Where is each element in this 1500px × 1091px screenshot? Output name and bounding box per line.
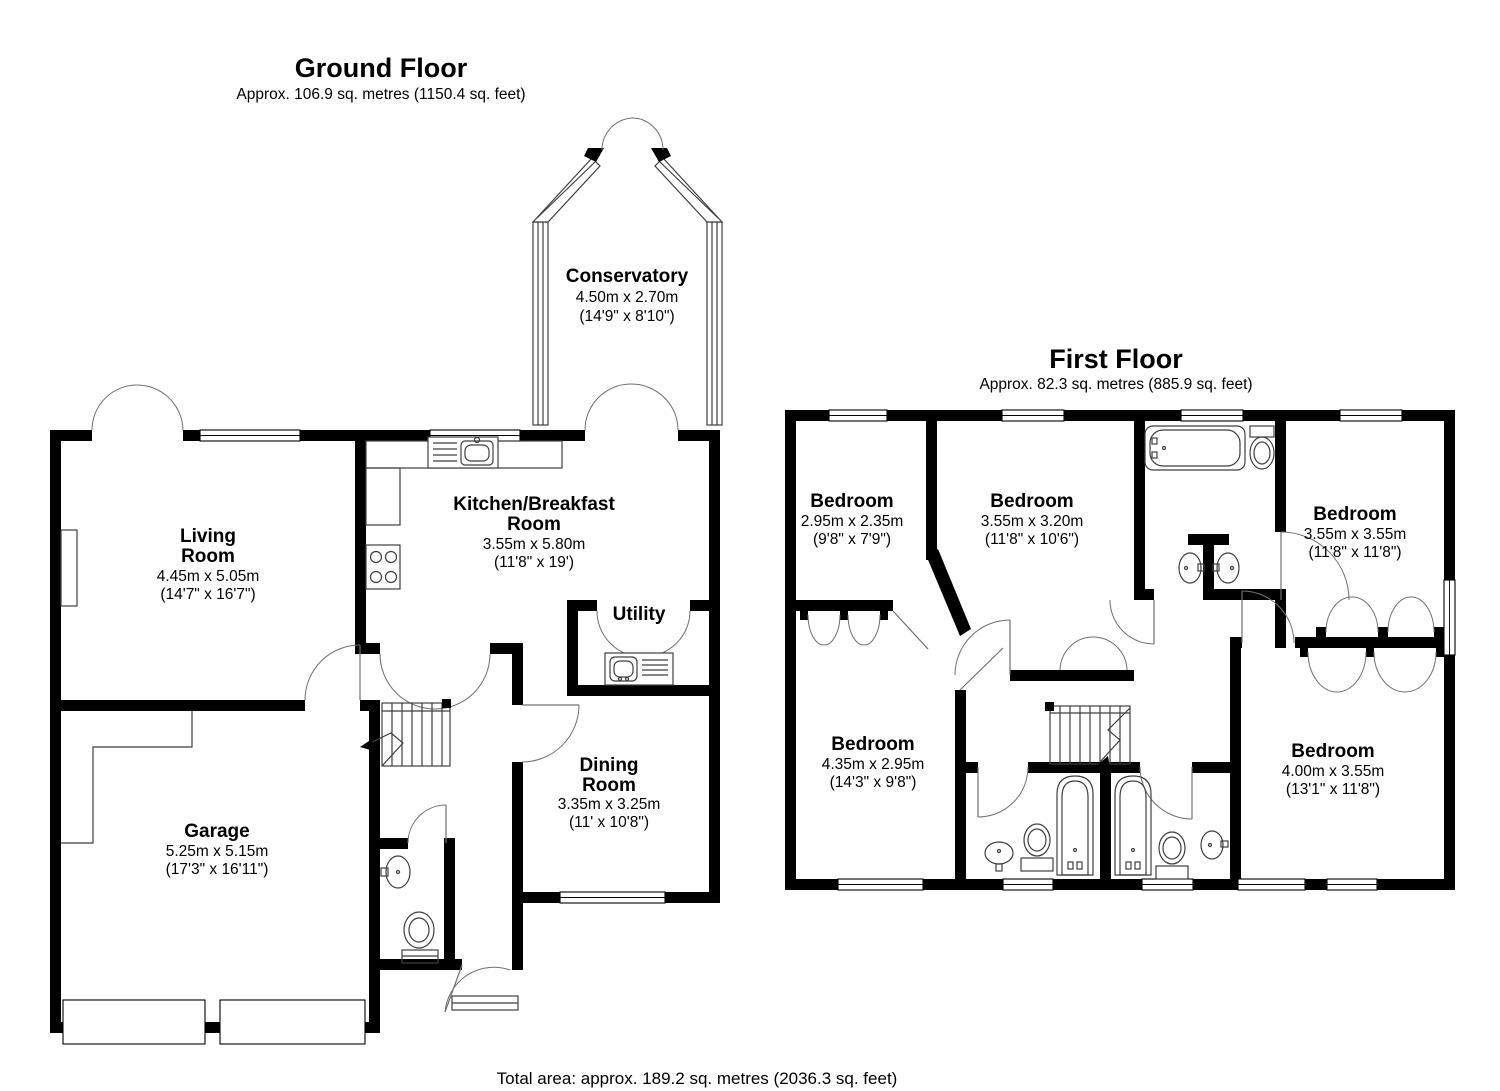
conservatory-inner-door-arc: [631, 384, 678, 430]
kitchen-door-arc: [380, 654, 435, 709]
window: [1238, 879, 1305, 890]
svg-text:4.00m x 3.55m: 4.00m x 3.55m: [1282, 763, 1385, 780]
first-floor-title: First Floor: [1049, 344, 1183, 374]
room-label-bedroom-top-middle: Bedroom 3.55m x 3.20m (11'8" x 10'6"): [981, 491, 1084, 548]
svg-text:Conservatory: Conservatory: [566, 266, 689, 287]
room-label-utility: Utility: [613, 604, 666, 625]
bedroom2-closet-arc: [1060, 637, 1093, 670]
room-label-bedroom-bottom-right: Bedroom 4.00m x 3.55m (13'1" x 11'8"): [1282, 741, 1385, 798]
room-label-dining-room: Dining Room 3.35m x 3.25m (11' x 10'8"): [558, 755, 661, 831]
window: [1002, 410, 1064, 421]
ensuite-left-door-arc: [978, 767, 1028, 817]
room-label-bedroom-top-left: Bedroom 2.95m x 2.35m (9'8" x 7'9"): [801, 491, 904, 548]
ensuite-right-bath-icon: [1115, 776, 1151, 875]
bedroom-bl-door-leaf: [960, 648, 1003, 690]
toilet-icon: [1250, 426, 1274, 469]
ground-floor-walls: [50, 430, 720, 1033]
svg-text:Bedroom: Bedroom: [831, 734, 914, 755]
window: [829, 410, 887, 421]
bath-icon: [1145, 426, 1245, 470]
svg-text:Bedroom: Bedroom: [1313, 504, 1396, 525]
svg-text:(14'3" x 9'8"): (14'3" x 9'8"): [830, 774, 917, 791]
svg-text:3.55m x 3.55m: 3.55m x 3.55m: [1304, 526, 1407, 543]
wc-sink-icon: [381, 856, 410, 888]
window: [1327, 879, 1377, 890]
svg-text:(11'8" x 10'6"): (11'8" x 10'6"): [985, 531, 1079, 548]
window: [838, 879, 923, 890]
svg-text:Bedroom: Bedroom: [810, 491, 893, 512]
svg-text:Kitchen/Breakfast: Kitchen/Breakfast: [453, 494, 615, 515]
svg-text:(14'9" x 8'10"): (14'9" x 8'10"): [579, 308, 674, 325]
window: [1181, 410, 1243, 421]
svg-text:2.95m x 2.35m: 2.95m x 2.35m: [801, 513, 904, 530]
ensuite-left-sink-icon: [985, 842, 1013, 871]
svg-text:(11'8" x 19'): (11'8" x 19'): [494, 554, 574, 571]
ensuite-right-toilet-icon: [1156, 832, 1188, 879]
window: [1340, 410, 1402, 421]
garage-storage-outline: [61, 711, 192, 843]
floorplan-page: Ground Floor Approx. 106.9 sq. metres (1…: [0, 0, 1500, 1091]
total-area-text: Total area: approx. 189.2 sq. metres (20…: [497, 1069, 898, 1088]
window: [200, 430, 300, 441]
svg-text:(11'8" x 11'8"): (11'8" x 11'8"): [1308, 544, 1401, 561]
svg-text:(14'7" x 16'7"): (14'7" x 16'7"): [160, 586, 255, 603]
svg-text:5.25m x 5.15m: 5.25m x 5.15m: [166, 843, 269, 860]
first-floor-plan: First Floor Approx. 82.3 sq. metres (885…: [785, 344, 1455, 890]
room-label-bedroom-bottom-left: Bedroom 4.35m x 2.95m (14'3" x 9'8"): [822, 734, 925, 791]
french-door-arc: [137, 385, 183, 430]
wc-door-arc: [408, 805, 446, 843]
svg-text:Bedroom: Bedroom: [990, 491, 1073, 512]
room-label-garage: Garage 5.25m x 5.15m (17'3" x 16'11"): [166, 821, 269, 878]
bathroom-door-arc: [1110, 600, 1154, 644]
conservatory-door-arc: [632, 118, 663, 150]
window: [1142, 879, 1193, 890]
svg-text:Room: Room: [507, 514, 561, 535]
ground-floor-subtitle: Approx. 106.9 sq. metres (1150.4 sq. fee…: [236, 86, 525, 103]
porch-step: [452, 996, 518, 1010]
hob-icon: [366, 545, 400, 589]
bedroom2-closet-arc: [1093, 637, 1127, 670]
kitchen-sink-icon: [428, 437, 498, 468]
conservatory-door-arc: [602, 118, 632, 150]
window: [1444, 580, 1455, 655]
french-door-arc: [92, 385, 137, 430]
svg-text:3.55m x 3.20m: 3.55m x 3.20m: [981, 513, 1084, 530]
dining-door-arc: [522, 705, 579, 762]
front-door-arc: [445, 967, 510, 1012]
ground-floor-plan: Ground Floor Approx. 106.9 sq. metres (1…: [50, 53, 722, 1044]
fireplace-recess: [61, 530, 77, 606]
svg-text:Room: Room: [582, 775, 636, 796]
window: [560, 892, 665, 903]
svg-text:3.35m x 3.25m: 3.35m x 3.25m: [558, 796, 661, 813]
svg-text:Bedroom: Bedroom: [1291, 741, 1374, 762]
wc-toilet-icon: [402, 912, 438, 963]
ensuite-left-toilet-icon: [1021, 824, 1053, 871]
room-label-bedroom-top-right: Bedroom 3.55m x 3.55m (11'8" x 11'8"): [1304, 504, 1407, 561]
ground-floor-title: Ground Floor: [295, 53, 468, 83]
svg-text:4.45m x 5.05m: 4.45m x 5.05m: [157, 568, 260, 585]
svg-text:(11' x 10'8"): (11' x 10'8"): [569, 814, 649, 831]
svg-text:Garage: Garage: [184, 821, 249, 842]
ensuite-right-door-arc: [1140, 767, 1192, 819]
ensuite-right-sink-icon: [1201, 831, 1228, 859]
floorplan-canvas: Ground Floor Approx. 106.9 sq. metres (1…: [0, 0, 1500, 1091]
window: [1003, 879, 1053, 890]
living-room-door-arc: [305, 645, 360, 700]
conservatory-inner-door-arc: [585, 384, 631, 430]
svg-text:3.55m x 5.80m: 3.55m x 5.80m: [483, 536, 586, 553]
svg-text:Living: Living: [180, 526, 236, 547]
ensuite-left-bath-icon: [1057, 776, 1093, 875]
svg-text:(13'1" x 11'8"): (13'1" x 11'8"): [1286, 781, 1380, 798]
svg-text:(9'8" x 7'9"): (9'8" x 7'9"): [813, 531, 891, 548]
svg-text:4.35m x 2.95m: 4.35m x 2.95m: [822, 756, 925, 773]
svg-text:Utility: Utility: [613, 604, 666, 625]
first-floor-subtitle: Approx. 82.3 sq. metres (885.9 sq. feet): [979, 376, 1252, 393]
room-label-kitchen: Kitchen/Breakfast Room 3.55m x 5.80m (11…: [453, 494, 615, 571]
room-label-conservatory: Conservatory 4.50m x 2.70m (14'9" x 8'10…: [566, 266, 689, 325]
bedroom1-door-leaf: [893, 611, 928, 649]
svg-text:(17'3" x 16'11"): (17'3" x 16'11"): [166, 861, 269, 878]
room-label-living-room: Living Room 4.45m x 5.05m (14'7" x 16'7"…: [157, 526, 260, 603]
svg-text:Dining: Dining: [579, 755, 638, 776]
svg-text:Room: Room: [181, 546, 235, 567]
svg-text:4.50m x 2.70m: 4.50m x 2.70m: [576, 289, 679, 306]
utility-sink-icon: [605, 653, 673, 685]
stairs-first-icon: [1045, 702, 1130, 768]
